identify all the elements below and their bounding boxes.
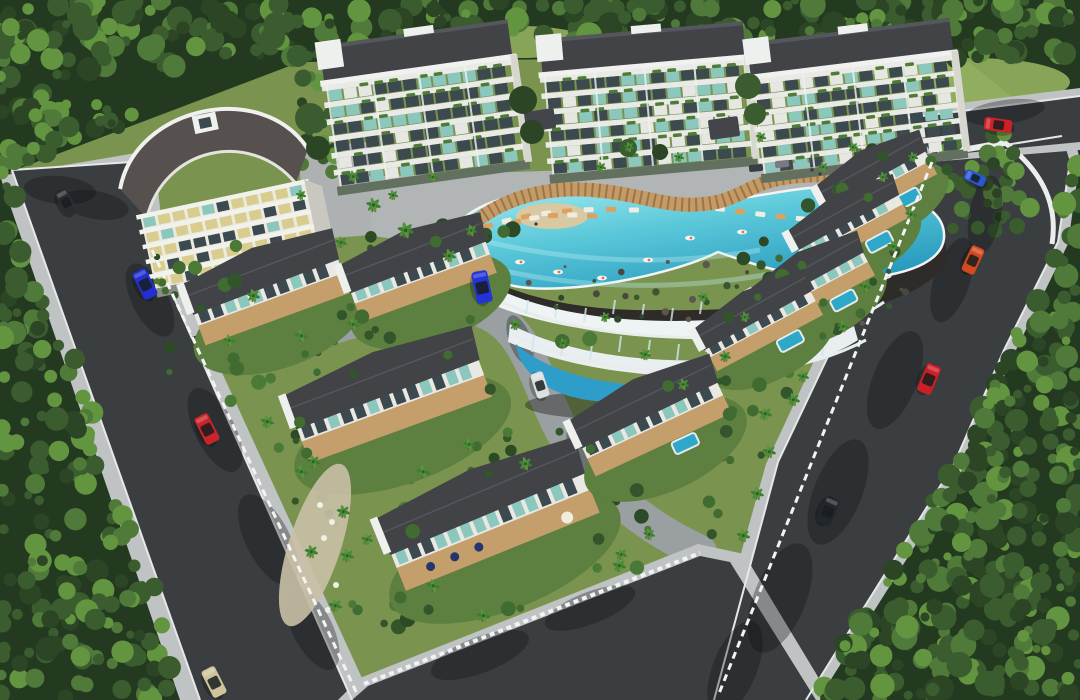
person-dot (810, 168, 813, 171)
pool-float-dot (648, 259, 651, 262)
courtyard-tree (744, 103, 766, 125)
garden-chair (325, 607, 331, 613)
scene-svg (0, 0, 1080, 700)
pool-float-dot (742, 231, 745, 234)
courtyard-tree (652, 144, 668, 160)
garden-chair (321, 535, 327, 541)
garden-chair (317, 502, 323, 508)
parked-car-small (775, 160, 790, 168)
entrance-cabana (708, 116, 740, 140)
courtyard-tree (295, 103, 325, 133)
lounge-chair (629, 208, 639, 213)
lounge-chair (548, 213, 558, 219)
parked-car-small (749, 164, 764, 172)
garden-chair (333, 582, 339, 588)
lounge-chair (587, 214, 597, 219)
lounge-chair (567, 212, 577, 217)
person-dot (818, 172, 821, 175)
lounge-chair (584, 207, 594, 212)
garden-chair (329, 519, 335, 525)
courtyard-tree (735, 73, 761, 99)
courtyard-tree (520, 120, 544, 144)
pool-float-dot (558, 271, 561, 274)
pool-float-dot (690, 237, 693, 240)
pool-float-dot (602, 277, 605, 280)
person-dot (487, 234, 490, 237)
pool-float-dot (520, 261, 523, 264)
aerial-render (0, 0, 1080, 700)
person-dot (534, 222, 537, 225)
courtyard-tree (306, 136, 330, 160)
courtyard-tree (509, 86, 537, 114)
lounge-chair (606, 207, 616, 212)
